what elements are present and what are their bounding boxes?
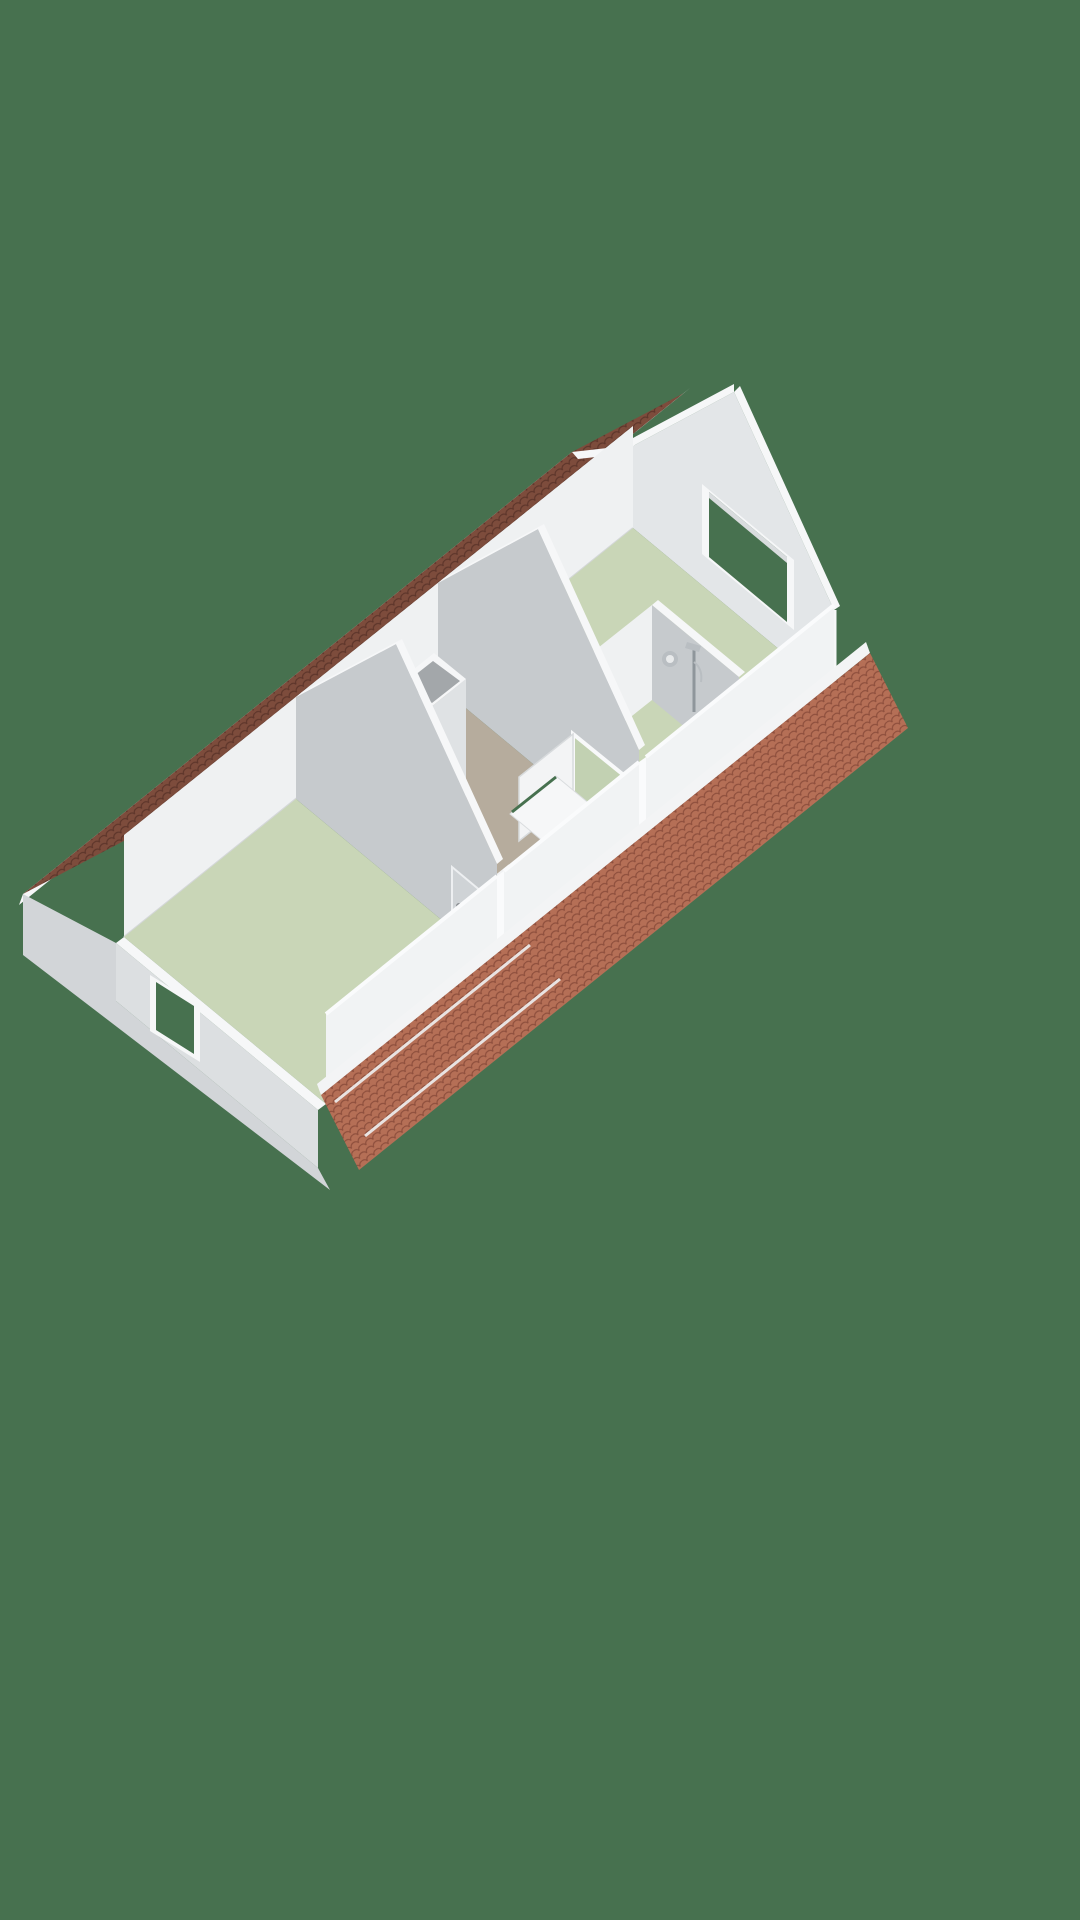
floorplan-canvas [0, 0, 1080, 1920]
floorplan-3d-view [0, 0, 1080, 1920]
towel-ring-center [666, 655, 674, 663]
